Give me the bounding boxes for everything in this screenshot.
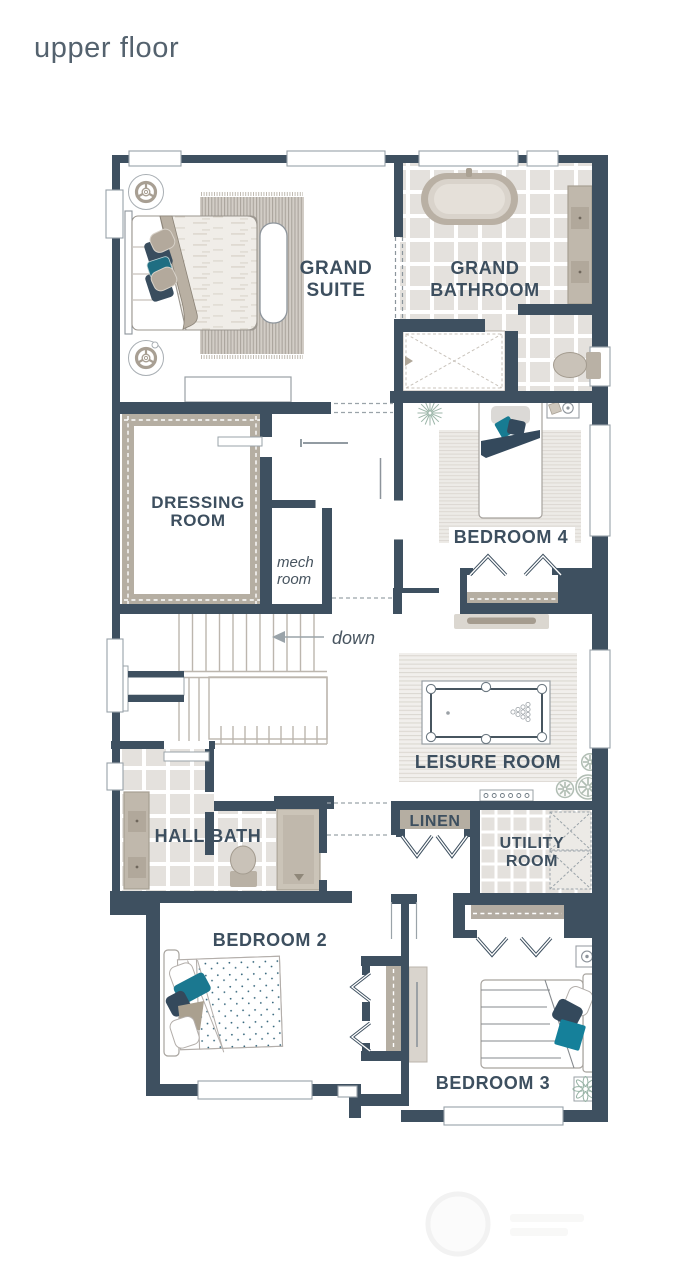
svg-text:GRAND: GRAND (300, 258, 373, 279)
svg-text:mech: mech (277, 554, 314, 571)
svg-text:BEDROOM 4: BEDROOM 4 (454, 527, 568, 547)
svg-text:room: room (277, 571, 311, 588)
svg-text:SUITE: SUITE (307, 280, 366, 301)
svg-text:BATHROOM: BATHROOM (430, 280, 539, 300)
svg-text:ROOM: ROOM (506, 853, 558, 870)
svg-text:HALL BATH: HALL BATH (155, 826, 262, 846)
svg-text:LINEN: LINEN (410, 813, 461, 830)
svg-text:ROOM: ROOM (170, 511, 225, 530)
svg-text:DRESSING: DRESSING (151, 493, 245, 512)
svg-text:BEDROOM 2: BEDROOM 2 (213, 930, 327, 950)
svg-text:LEISURE ROOM: LEISURE ROOM (415, 752, 561, 772)
svg-text:upper floor: upper floor (34, 32, 179, 64)
svg-text:UTILITY: UTILITY (500, 835, 565, 852)
svg-text:down: down (332, 628, 375, 648)
svg-text:GRAND: GRAND (451, 258, 520, 278)
svg-text:BEDROOM 3: BEDROOM 3 (436, 1073, 550, 1093)
